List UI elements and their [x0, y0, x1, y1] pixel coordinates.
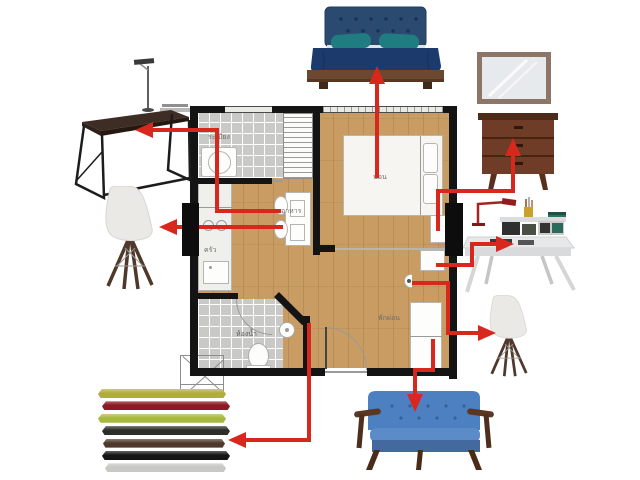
- placemat-symbol: [290, 224, 305, 241]
- kitchen-sink-symbol: [203, 261, 229, 284]
- wall-bathroom-right: [303, 316, 310, 371]
- wall-mirror: [477, 52, 551, 104]
- kitchen-label: ครัว: [204, 247, 216, 254]
- shelf-bar-3: [98, 414, 226, 423]
- washer-drum: [208, 151, 231, 174]
- pillow: [330, 33, 371, 51]
- pillow: [379, 33, 420, 50]
- sink-drain: [209, 266, 212, 269]
- wall-bathroom-top: [190, 293, 238, 299]
- blanket-fold-line: [420, 136, 421, 215]
- bedroom-label: นอน: [373, 174, 387, 181]
- console-desk: [68, 52, 193, 202]
- bedroom-window: [323, 106, 443, 113]
- pillow-symbol: [423, 143, 438, 173]
- fixture-dot: [407, 279, 411, 283]
- door-threshold: [325, 371, 367, 373]
- sink-drain: [285, 328, 289, 332]
- pillow-symbol: [423, 174, 438, 204]
- walnut-dresser: [477, 110, 559, 190]
- balcony-window: [225, 106, 272, 113]
- wall-balcony: [198, 178, 272, 184]
- stove-burner: [216, 220, 227, 231]
- shelf-bar-6: [102, 451, 230, 460]
- balcony-label: ระเบียง: [208, 134, 230, 141]
- wall-bedroom-bottom: [313, 245, 335, 252]
- sliding-partition: [335, 248, 456, 250]
- shelf-bar-7: [105, 463, 226, 472]
- door-panel: [325, 327, 327, 369]
- moodboard-canvas: ระเบียง นอน อาหาร ครัว ห้องน้: [0, 0, 640, 480]
- floor-plan: ระเบียง นอน อาหาร ครัว ห้องน้: [180, 103, 466, 403]
- eiffel-chair-right: [480, 295, 538, 379]
- counter-line: [198, 207, 232, 208]
- navy-bed: [303, 4, 448, 89]
- shaft-block-left: [182, 203, 199, 256]
- wall-shelves: [98, 389, 234, 479]
- living-label: พักผ่อน: [378, 315, 400, 322]
- dining-label: อาหาร: [281, 208, 301, 215]
- white-study-desk: [462, 190, 580, 294]
- dining-chair-symbol: [274, 220, 288, 239]
- shelf-bar-4: [102, 426, 230, 435]
- shelf-bar-1: [98, 389, 226, 398]
- wall-bottom: [190, 368, 457, 376]
- plan-desk-symbol: [420, 250, 445, 271]
- wardrobe-symbol: [283, 113, 313, 179]
- blue-loveseat-sofa: [348, 386, 500, 472]
- balcony-door: [272, 180, 283, 182]
- wall-bedroom-left: [313, 106, 320, 255]
- shelf-bar-2: [102, 401, 230, 410]
- stove-burner: [203, 220, 214, 231]
- bathroom-label: ห้องน้ำ: [236, 331, 257, 338]
- shelf-bar-5: [103, 439, 225, 448]
- shaft-block-right: [445, 203, 463, 256]
- sofa-cushion-line: [410, 336, 442, 337]
- eiffel-chair-left: [93, 186, 167, 292]
- desk-lamp-head: [134, 58, 154, 65]
